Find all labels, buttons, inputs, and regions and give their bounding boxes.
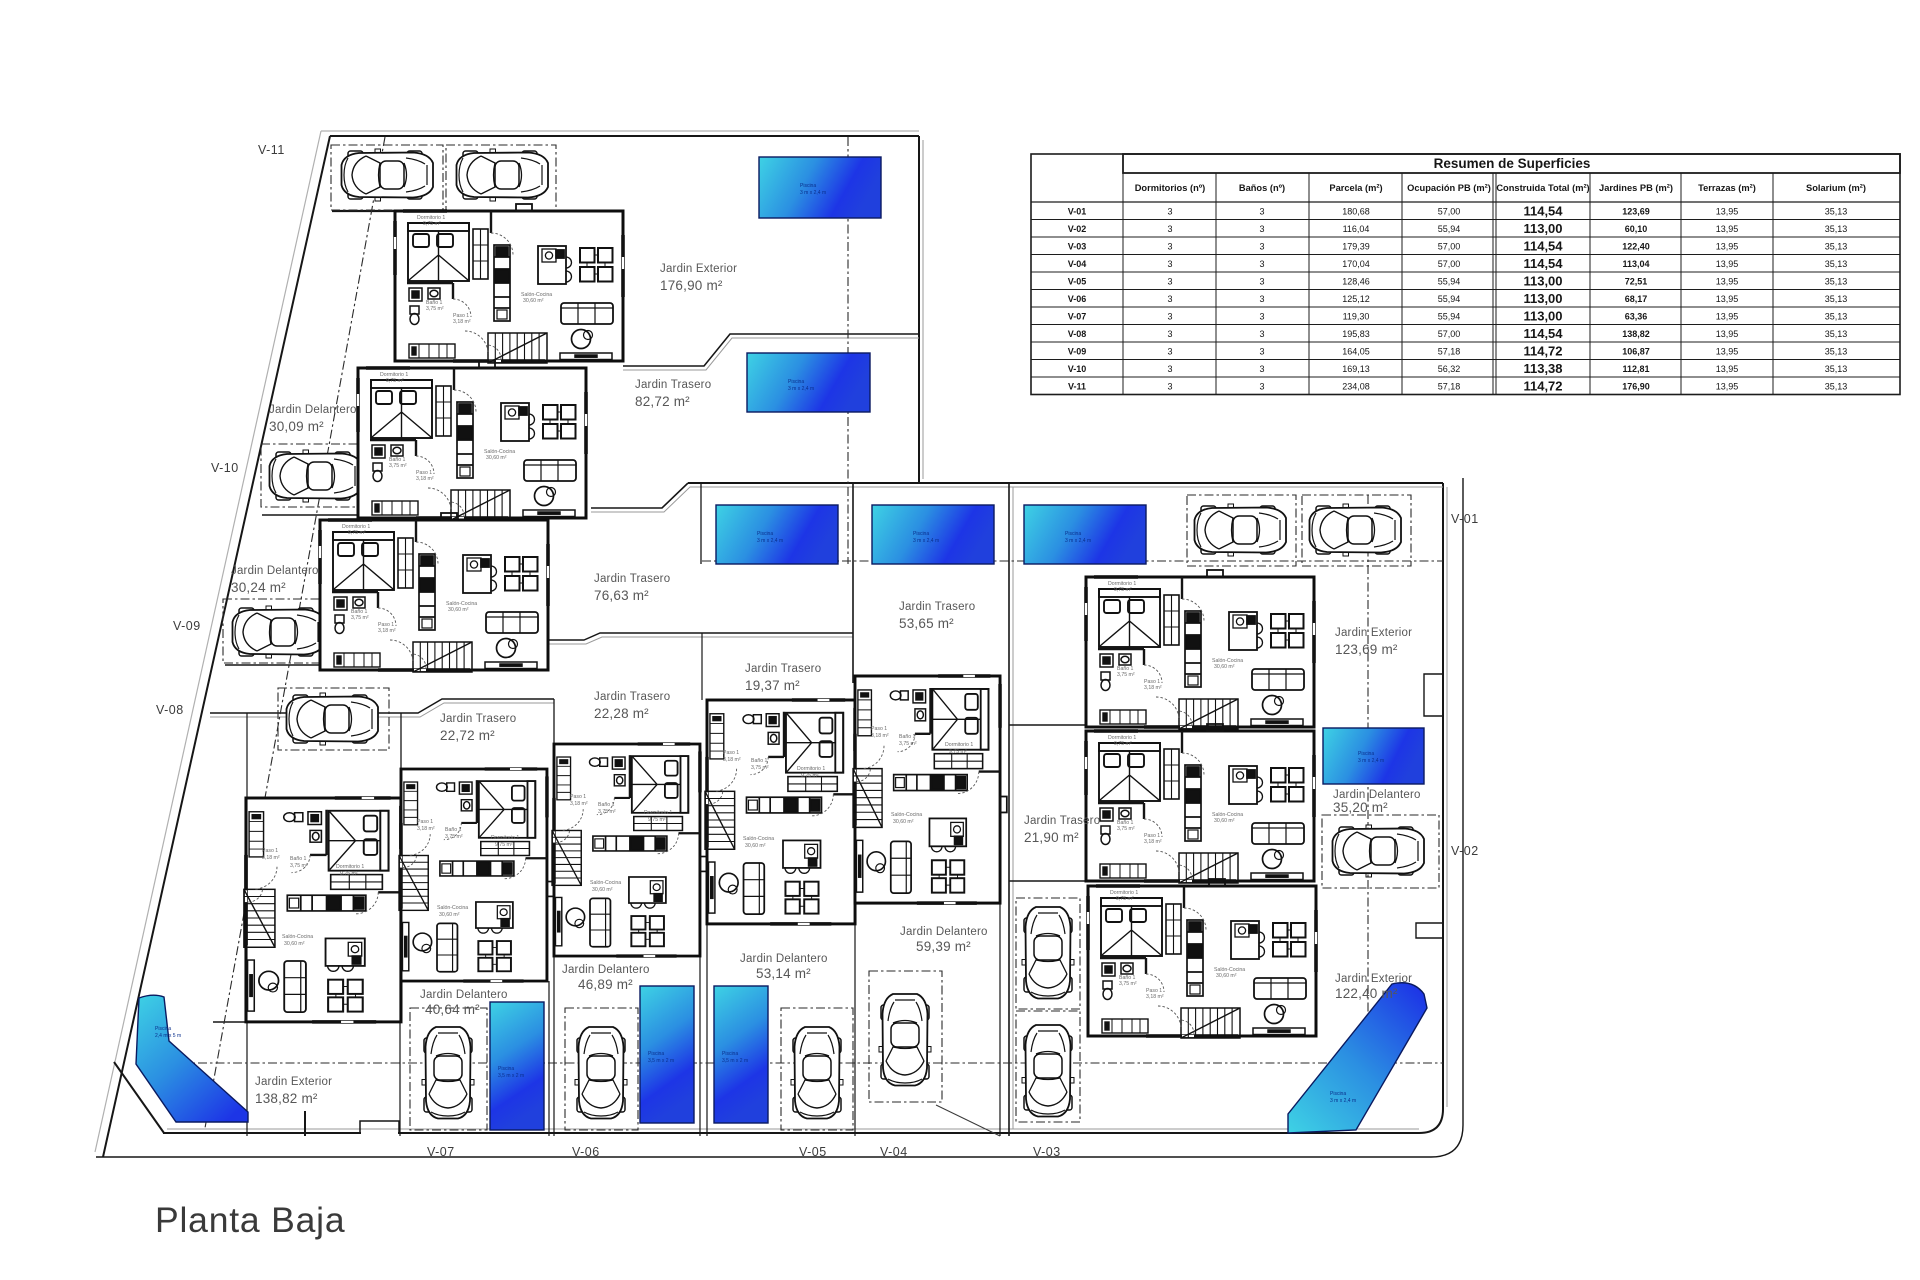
svg-text:35,13: 35,13 [1825,224,1848,234]
svg-text:9,75 m²: 9,75 m² [1114,741,1132,747]
svg-text:13,95: 13,95 [1716,347,1739,357]
svg-text:3 m x 2,4 m: 3 m x 2,4 m [757,538,783,544]
svg-text:3: 3 [1167,207,1172,217]
svg-text:Jardin Trasero: Jardin Trasero [899,601,975,613]
svg-text:Dormitorio 1: Dormitorio 1 [644,810,672,816]
svg-text:113,00: 113,00 [1523,221,1562,236]
svg-text:13,95: 13,95 [1716,277,1739,287]
svg-text:234,08: 234,08 [1342,382,1370,392]
svg-text:3: 3 [1259,312,1264,322]
svg-text:30,60 m²: 30,60 m² [448,607,469,613]
svg-text:63,36: 63,36 [1625,312,1648,322]
svg-text:22,28 m²: 22,28 m² [594,706,649,721]
svg-text:55,94: 55,94 [1438,224,1461,234]
svg-text:3,75 m²: 3,75 m² [351,615,369,621]
svg-text:Piscina: Piscina [757,531,773,537]
svg-text:9,75 m²: 9,75 m² [386,378,404,384]
svg-text:35,13: 35,13 [1825,329,1848,339]
svg-text:35,13: 35,13 [1825,347,1848,357]
svg-text:138,82 m²: 138,82 m² [255,1091,318,1106]
svg-text:57,18: 57,18 [1438,382,1461,392]
svg-text:3: 3 [1259,224,1264,234]
svg-text:9,75 m²: 9,75 m² [648,817,666,823]
svg-text:179,39: 179,39 [1342,242,1370,252]
svg-text:3,75 m²: 3,75 m² [751,765,769,771]
svg-text:13,95: 13,95 [1716,242,1739,252]
svg-text:Piscina: Piscina [722,1051,738,1057]
svg-text:30,60 m²: 30,60 m² [1214,818,1235,824]
svg-text:122,40: 122,40 [1622,242,1650,252]
svg-text:Piscina: Piscina [913,531,929,537]
svg-text:114,54: 114,54 [1523,204,1563,219]
svg-text:Piscina: Piscina [1065,531,1081,537]
svg-text:Jardin Delantero: Jardin Delantero [231,565,319,577]
svg-text:13,95: 13,95 [1716,382,1739,392]
svg-text:Jardin Delantero: Jardin Delantero [900,926,988,938]
svg-text:22,72 m²: 22,72 m² [440,728,495,743]
svg-text:35,13: 35,13 [1825,207,1848,217]
svg-text:V-02: V-02 [1068,224,1087,234]
svg-text:V-02: V-02 [1451,844,1479,858]
svg-text:3,75 m²: 3,75 m² [445,834,463,840]
svg-text:3: 3 [1259,207,1264,217]
svg-text:Jardin Trasero: Jardin Trasero [745,663,821,675]
svg-text:9,75 m²: 9,75 m² [949,749,967,755]
svg-text:Parcela (m²): Parcela (m²) [1329,183,1382,193]
svg-text:35,13: 35,13 [1825,294,1848,304]
svg-text:3,18 m²: 3,18 m² [262,855,280,861]
svg-text:Jardin Exterior: Jardin Exterior [1335,973,1412,985]
svg-text:138,82: 138,82 [1622,329,1650,339]
svg-text:119,30: 119,30 [1343,312,1370,322]
svg-text:3: 3 [1167,259,1172,269]
svg-text:30,60 m²: 30,60 m² [439,912,460,918]
svg-text:3,5 m x 2 m: 3,5 m x 2 m [722,1058,748,1064]
svg-text:164,05: 164,05 [1342,347,1370,357]
svg-text:Jardines PB (m²): Jardines PB (m²) [1599,183,1673,193]
svg-text:3 m x 2,4 m: 3 m x 2,4 m [913,538,939,544]
svg-text:53,14 m²: 53,14 m² [756,966,811,981]
svg-text:13,95: 13,95 [1716,294,1739,304]
svg-text:72,51: 72,51 [1625,277,1648,287]
svg-text:3 m x 2,4 m: 3 m x 2,4 m [788,386,814,392]
svg-text:3: 3 [1259,364,1264,374]
svg-text:53,65 m²: 53,65 m² [899,616,954,631]
svg-text:35,13: 35,13 [1825,312,1848,322]
svg-text:Jardin Delantero: Jardin Delantero [562,964,650,976]
svg-text:40,64 m²: 40,64 m² [425,1002,480,1017]
svg-text:Paso 1: Paso 1 [723,750,739,756]
svg-text:V-10: V-10 [1068,364,1087,374]
svg-text:3: 3 [1167,347,1172,357]
svg-text:30,60 m²: 30,60 m² [523,298,544,304]
svg-text:Baño 1: Baño 1 [445,827,462,833]
svg-text:128,46: 128,46 [1342,277,1370,287]
svg-text:Jardin Trasero: Jardin Trasero [594,573,670,585]
svg-text:V-06: V-06 [1068,294,1087,304]
svg-text:55,94: 55,94 [1438,277,1461,287]
svg-text:35,13: 35,13 [1825,259,1848,269]
svg-text:114,72: 114,72 [1523,344,1562,359]
svg-text:60,10: 60,10 [1625,224,1648,234]
svg-text:V-07: V-07 [427,1145,455,1159]
svg-text:V-10: V-10 [211,461,239,475]
svg-text:3,18 m²: 3,18 m² [378,628,396,634]
svg-text:57,00: 57,00 [1438,242,1461,252]
svg-text:123,69: 123,69 [1622,207,1650,217]
svg-text:Piscina: Piscina [1358,751,1374,757]
svg-text:57,18: 57,18 [1438,347,1461,357]
svg-text:V-07: V-07 [1068,312,1087,322]
svg-text:Terrazas (m²): Terrazas (m²) [1698,183,1756,193]
svg-text:V-08: V-08 [156,703,184,717]
svg-text:3: 3 [1259,294,1264,304]
svg-text:2,4 m x 5 m: 2,4 m x 5 m [155,1033,181,1039]
svg-text:Baño 1: Baño 1 [751,758,768,764]
svg-text:Piscina: Piscina [498,1066,514,1072]
svg-text:V-04: V-04 [880,1145,908,1159]
svg-text:3 m x 2,4 m: 3 m x 2,4 m [1330,1098,1356,1104]
svg-text:Jardin Exterior: Jardin Exterior [1335,627,1412,639]
svg-text:V-04: V-04 [1068,259,1087,269]
svg-text:Baño 1: Baño 1 [290,856,307,862]
svg-text:3,5 m x 2 m: 3,5 m x 2 m [498,1073,524,1079]
svg-text:V-08: V-08 [1068,329,1087,339]
svg-text:Paso 1: Paso 1 [417,819,433,825]
svg-text:3: 3 [1167,294,1172,304]
svg-text:Jardin Trasero: Jardin Trasero [1024,815,1100,827]
svg-text:3,75 m²: 3,75 m² [1117,672,1135,678]
svg-text:Dormitorio 1: Dormitorio 1 [491,835,519,841]
svg-text:3: 3 [1167,242,1172,252]
svg-text:30,60 m²: 30,60 m² [486,455,507,461]
svg-text:114,54: 114,54 [1523,239,1563,254]
svg-text:3,18 m²: 3,18 m² [723,757,741,763]
svg-text:21,90 m²: 21,90 m² [1024,830,1079,845]
svg-text:Salón-Cocina: Salón-Cocina [437,905,468,911]
svg-text:Jardin Delantero: Jardin Delantero [420,989,508,1001]
svg-text:57,00: 57,00 [1438,207,1461,217]
svg-text:3: 3 [1167,277,1172,287]
svg-text:116,04: 116,04 [1343,224,1370,234]
svg-text:Baño 1: Baño 1 [899,734,916,740]
svg-text:113,38: 113,38 [1523,361,1562,376]
svg-text:Salón-Cocina: Salón-Cocina [891,812,922,818]
svg-text:3: 3 [1259,382,1264,392]
svg-text:169,13: 169,13 [1342,364,1370,374]
svg-text:3: 3 [1167,312,1172,322]
svg-text:V-01: V-01 [1068,207,1087,217]
svg-text:19,37 m²: 19,37 m² [745,678,800,693]
svg-text:46,89 m²: 46,89 m² [578,977,633,992]
svg-text:3,75 m²: 3,75 m² [1119,981,1137,987]
svg-text:V-03: V-03 [1033,1145,1061,1159]
svg-text:114,54: 114,54 [1523,256,1563,271]
svg-text:13,95: 13,95 [1716,329,1739,339]
svg-text:3,18 m²: 3,18 m² [871,733,889,739]
svg-text:Salón-Cocina: Salón-Cocina [282,934,313,940]
svg-text:30,60 m²: 30,60 m² [893,819,914,825]
svg-text:176,90: 176,90 [1622,382,1650,392]
svg-text:Dormitorio 1: Dormitorio 1 [797,766,825,772]
svg-text:13,95: 13,95 [1716,259,1739,269]
svg-text:3,18 m²: 3,18 m² [453,319,471,325]
svg-text:3,18 m²: 3,18 m² [416,476,434,482]
svg-text:114,54: 114,54 [1523,326,1563,341]
svg-text:V-09: V-09 [1068,347,1087,357]
svg-text:Piscina: Piscina [788,379,804,385]
svg-text:Jardin Exterior: Jardin Exterior [660,263,737,275]
svg-text:3,75 m²: 3,75 m² [389,463,407,469]
svg-text:Piscina: Piscina [800,183,816,189]
svg-text:30,60 m²: 30,60 m² [1214,664,1235,670]
svg-text:113,00: 113,00 [1523,309,1562,324]
svg-text:V-09: V-09 [173,619,201,633]
svg-text:Dormitorio 1: Dormitorio 1 [945,742,973,748]
svg-text:106,87: 106,87 [1622,347,1650,357]
svg-text:9,75 m²: 9,75 m² [1116,896,1134,902]
svg-text:55,94: 55,94 [1438,312,1461,322]
svg-text:13,95: 13,95 [1716,224,1739,234]
svg-text:195,83: 195,83 [1342,329,1370,339]
svg-text:82,72 m²: 82,72 m² [635,394,690,409]
svg-text:35,20 m²: 35,20 m² [1333,800,1388,815]
svg-text:V-01: V-01 [1451,512,1479,526]
svg-text:30,60 m²: 30,60 m² [284,941,305,947]
svg-text:3: 3 [1259,242,1264,252]
svg-text:35,13: 35,13 [1825,242,1848,252]
svg-text:3,75 m²: 3,75 m² [290,863,308,869]
svg-text:Resumen de Superficies: Resumen de Superficies [1434,156,1591,171]
svg-text:3: 3 [1259,347,1264,357]
svg-text:V-05: V-05 [1068,277,1087,287]
svg-text:3,75 m²: 3,75 m² [1117,826,1135,832]
svg-text:3: 3 [1259,259,1264,269]
svg-text:Construida Total (m²): Construida Total (m²) [1496,183,1589,193]
svg-text:3: 3 [1259,277,1264,287]
svg-text:30,24 m²: 30,24 m² [231,580,286,595]
svg-text:30,60 m²: 30,60 m² [592,887,613,893]
svg-text:76,63 m²: 76,63 m² [594,588,649,603]
svg-text:3,5 m x 2 m: 3,5 m x 2 m [648,1058,674,1064]
svg-text:180,68: 180,68 [1342,207,1370,217]
svg-text:35,13: 35,13 [1825,382,1848,392]
svg-text:68,17: 68,17 [1625,294,1648,304]
svg-text:30,60 m²: 30,60 m² [1216,973,1237,979]
svg-text:Piscina: Piscina [1330,1091,1346,1097]
svg-text:113,00: 113,00 [1523,291,1562,306]
svg-text:55,94: 55,94 [1438,294,1461,304]
svg-text:9,75 m²: 9,75 m² [423,221,441,227]
svg-text:9,75 m²: 9,75 m² [495,842,513,848]
svg-text:114,72: 114,72 [1523,379,1562,394]
svg-text:3,18 m²: 3,18 m² [1144,685,1162,691]
svg-text:56,32: 56,32 [1438,364,1461,374]
svg-text:9,75 m²: 9,75 m² [801,773,819,779]
svg-text:3 m x 2,4 m: 3 m x 2,4 m [1358,758,1384,764]
svg-text:Paso 1: Paso 1 [871,726,887,732]
svg-text:3,75 m²: 3,75 m² [899,741,917,747]
svg-text:3,18 m²: 3,18 m² [417,826,435,832]
svg-text:Jardin Trasero: Jardin Trasero [440,713,516,725]
svg-text:30,60 m²: 30,60 m² [745,843,766,849]
svg-text:3,75 m²: 3,75 m² [426,306,444,312]
svg-text:V-11: V-11 [1068,382,1086,392]
svg-text:113,00: 113,00 [1523,274,1562,289]
svg-text:Salón-Cocina: Salón-Cocina [743,836,774,842]
svg-text:Dormitorios (nº): Dormitorios (nº) [1135,183,1206,193]
svg-text:Baño 1: Baño 1 [598,802,615,808]
svg-text:Jardin Trasero: Jardin Trasero [594,691,670,703]
svg-text:Salón-Cocina: Salón-Cocina [590,880,621,886]
svg-text:112,81: 112,81 [1622,364,1649,374]
svg-text:3,18 m²: 3,18 m² [1144,839,1162,845]
svg-text:Jardin Delantero: Jardin Delantero [269,404,357,416]
svg-text:3: 3 [1167,364,1172,374]
svg-text:57,00: 57,00 [1438,259,1461,269]
svg-text:V-05: V-05 [799,1145,827,1159]
svg-text:3 m x 2,4 m: 3 m x 2,4 m [1065,538,1091,544]
svg-text:Ocupación PB (m²): Ocupación PB (m²) [1407,183,1491,193]
svg-text:Jardin Trasero: Jardin Trasero [635,379,711,391]
svg-text:Paso 1: Paso 1 [570,794,586,800]
svg-text:3: 3 [1167,224,1172,234]
svg-text:V-11: V-11 [258,143,285,157]
svg-text:170,04: 170,04 [1342,259,1370,269]
svg-text:Jardin Exterior: Jardin Exterior [255,1076,332,1088]
svg-text:Jardin Delantero: Jardin Delantero [740,953,828,965]
svg-text:35,13: 35,13 [1825,277,1848,287]
svg-text:3: 3 [1167,382,1172,392]
svg-text:9,75 m²: 9,75 m² [1114,587,1132,593]
svg-text:123,69 m²: 123,69 m² [1335,642,1398,657]
svg-text:59,39 m²: 59,39 m² [916,939,971,954]
svg-text:Piscina: Piscina [155,1026,171,1032]
svg-text:57,00: 57,00 [1438,329,1461,339]
svg-text:125,12: 125,12 [1342,294,1370,304]
svg-text:3,18 m²: 3,18 m² [570,801,588,807]
svg-text:13,95: 13,95 [1716,312,1739,322]
svg-text:3 m x 2,4 m: 3 m x 2,4 m [800,190,826,196]
svg-text:3,75 m²: 3,75 m² [598,809,616,815]
svg-text:V-06: V-06 [572,1145,600,1159]
svg-text:13,95: 13,95 [1716,364,1739,374]
svg-text:9,75 m²: 9,75 m² [340,871,358,877]
svg-text:Planta Baja: Planta Baja [155,1200,345,1240]
svg-text:Paso 1: Paso 1 [262,848,278,854]
svg-text:Piscina: Piscina [648,1051,664,1057]
svg-text:V-03: V-03 [1068,242,1087,252]
svg-text:122,40 m²: 122,40 m² [1335,986,1398,1001]
svg-text:Dormitorio 1: Dormitorio 1 [336,864,364,870]
svg-text:3: 3 [1167,329,1172,339]
svg-text:176,90 m²: 176,90 m² [660,278,723,293]
svg-text:30,09 m²: 30,09 m² [269,419,324,434]
svg-text:Baños (nº): Baños (nº) [1239,183,1285,193]
svg-text:3: 3 [1259,329,1264,339]
svg-text:3,18 m²: 3,18 m² [1146,994,1164,1000]
svg-text:113,04: 113,04 [1622,259,1649,269]
svg-text:35,13: 35,13 [1825,364,1848,374]
svg-text:Solarium (m²): Solarium (m²) [1806,183,1866,193]
svg-text:13,95: 13,95 [1716,207,1739,217]
svg-text:9,75 m²: 9,75 m² [348,530,366,536]
